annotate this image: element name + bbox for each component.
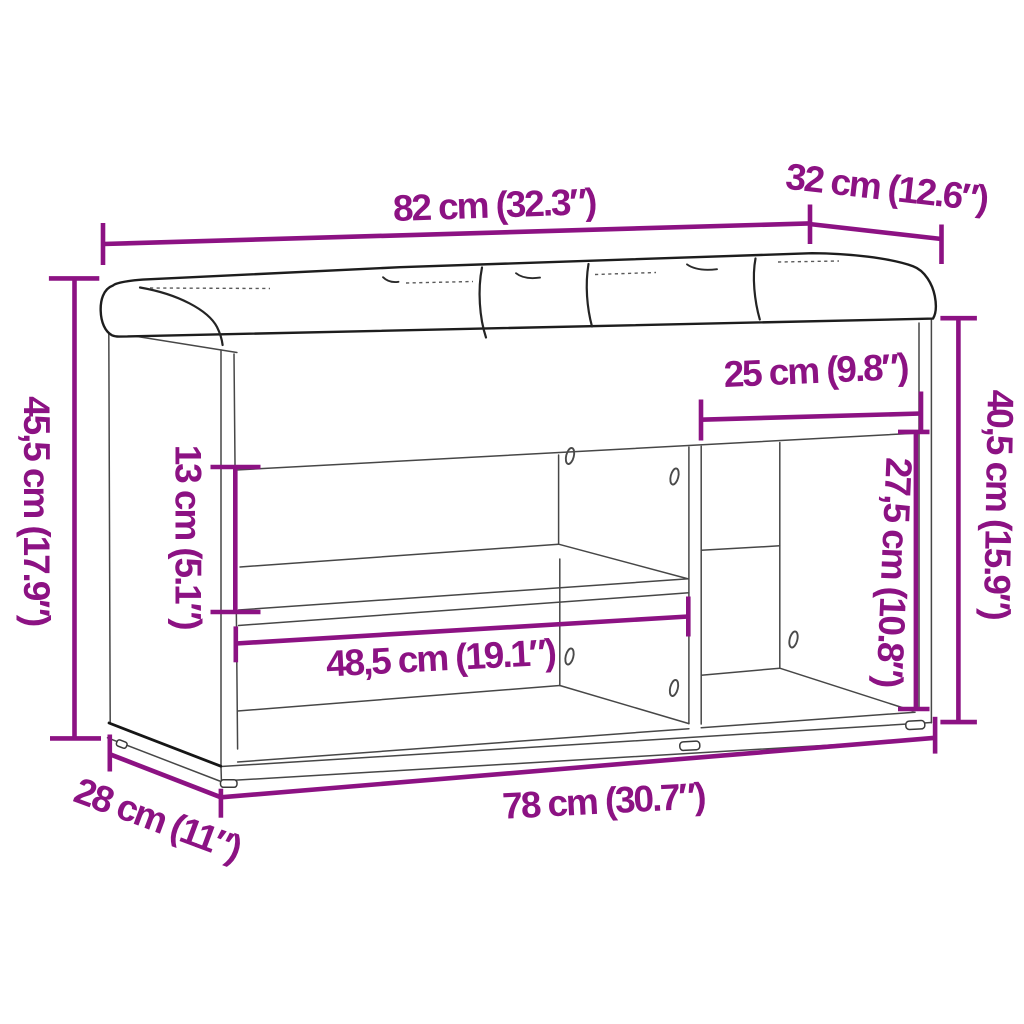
svg-text:13 cm (5.1″): 13 cm (5.1″) [168, 445, 209, 630]
svg-text:82 cm (32.3″): 82 cm (32.3″) [392, 181, 596, 229]
svg-text:45,5 cm (17.9″): 45,5 cm (17.9″) [16, 396, 57, 626]
svg-text:40,5 cm (15.9″): 40,5 cm (15.9″) [976, 389, 1021, 619]
svg-text:25 cm (9.8″): 25 cm (9.8″) [723, 346, 909, 395]
